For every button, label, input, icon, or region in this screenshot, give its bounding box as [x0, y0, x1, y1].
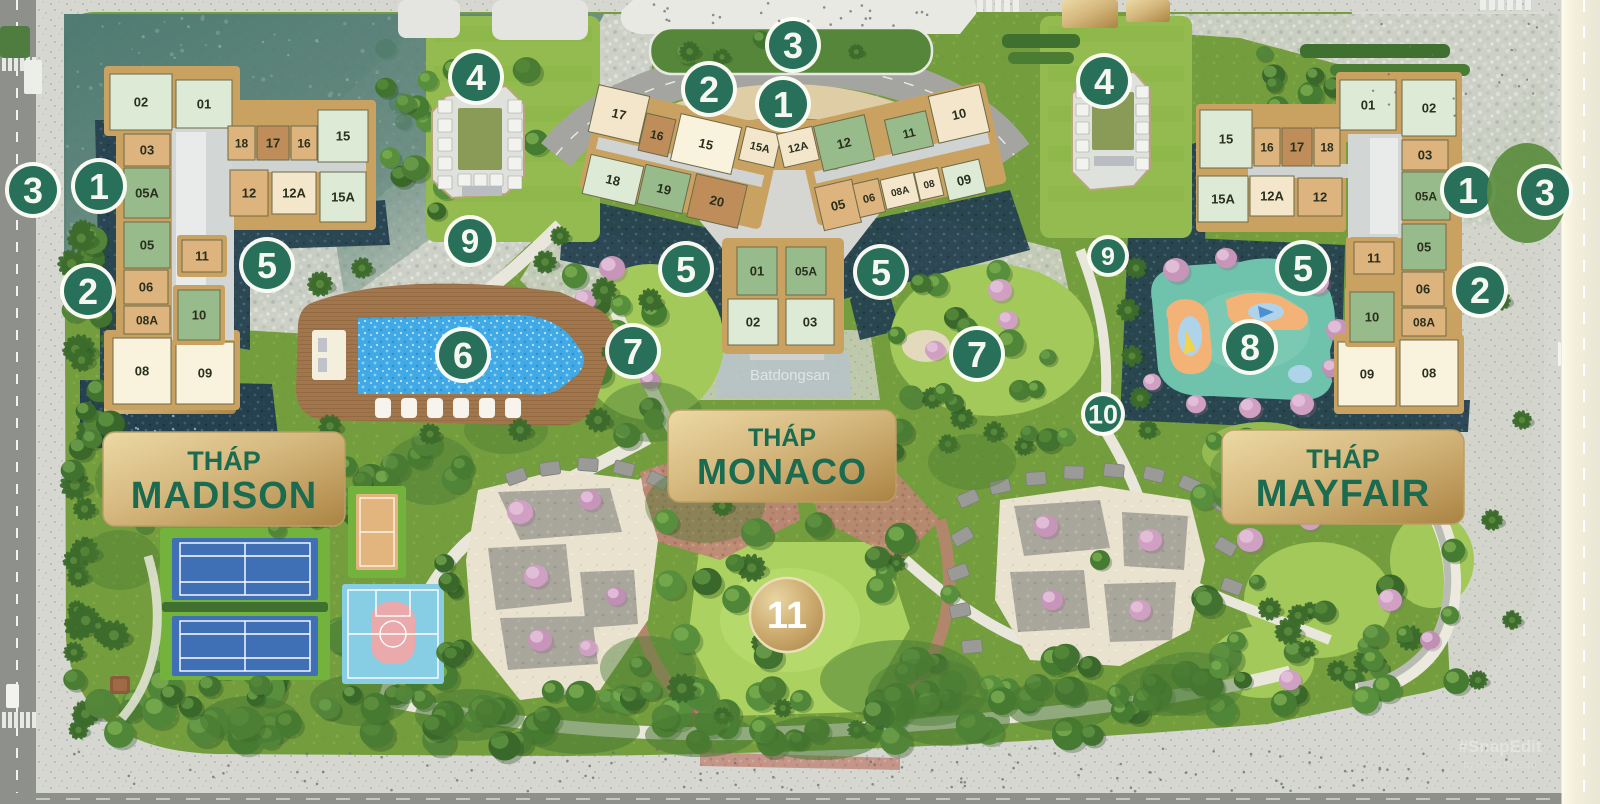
svg-text:11: 11 — [195, 249, 209, 264]
svg-text:15A: 15A — [331, 190, 355, 205]
svg-text:12: 12 — [242, 186, 256, 201]
svg-text:5: 5 — [1293, 248, 1313, 289]
svg-text:02: 02 — [1422, 101, 1436, 116]
svg-text:17: 17 — [1290, 140, 1304, 155]
svg-text:THÁP: THÁP — [187, 445, 261, 476]
svg-text:MONACO: MONACO — [697, 451, 867, 492]
svg-text:16: 16 — [1260, 140, 1274, 154]
svg-text:18: 18 — [1320, 140, 1334, 154]
svg-text:08: 08 — [135, 364, 149, 379]
svg-text:11: 11 — [1367, 251, 1381, 266]
svg-text:03: 03 — [803, 315, 817, 330]
svg-text:01: 01 — [1361, 98, 1375, 113]
svg-text:03: 03 — [1418, 148, 1432, 163]
svg-text:05A: 05A — [795, 264, 817, 278]
svg-text:11: 11 — [767, 595, 807, 637]
svg-text:#SnapEdit: #SnapEdit — [1458, 737, 1541, 756]
svg-text:1: 1 — [773, 84, 793, 125]
svg-text:06: 06 — [1416, 282, 1430, 297]
svg-text:01: 01 — [197, 97, 211, 112]
svg-text:7: 7 — [623, 331, 643, 372]
svg-text:THÁP: THÁP — [748, 423, 816, 452]
svg-text:02: 02 — [746, 315, 760, 330]
svg-text:6: 6 — [453, 335, 473, 376]
svg-text:05: 05 — [140, 238, 154, 253]
svg-text:08A: 08A — [1413, 315, 1435, 329]
svg-text:5: 5 — [257, 245, 277, 286]
svg-text:03: 03 — [140, 143, 154, 158]
svg-text:3: 3 — [23, 170, 43, 211]
svg-text:12: 12 — [1313, 190, 1327, 205]
svg-text:16: 16 — [297, 136, 311, 150]
svg-text:10: 10 — [192, 308, 206, 323]
svg-text:12A: 12A — [282, 186, 306, 201]
svg-text:05: 05 — [1417, 240, 1431, 255]
svg-text:15: 15 — [1219, 132, 1233, 147]
svg-text:01: 01 — [750, 264, 764, 279]
svg-text:7: 7 — [967, 334, 987, 375]
svg-text:09: 09 — [1360, 367, 1374, 382]
svg-text:1: 1 — [89, 166, 109, 207]
svg-text:05A: 05A — [1415, 189, 1437, 203]
svg-text:4: 4 — [466, 57, 486, 98]
svg-text:Batdongsan: Batdongsan — [750, 367, 830, 384]
svg-text:2: 2 — [78, 271, 98, 312]
svg-text:8: 8 — [1240, 327, 1260, 368]
svg-text:3: 3 — [1535, 172, 1555, 213]
svg-text:2: 2 — [699, 69, 719, 110]
svg-text:MADISON: MADISON — [131, 475, 317, 517]
svg-text:9: 9 — [461, 223, 479, 260]
svg-text:MAYFAIR: MAYFAIR — [1256, 473, 1431, 515]
svg-text:4: 4 — [1094, 61, 1114, 102]
svg-text:06: 06 — [139, 280, 153, 295]
svg-text:3: 3 — [783, 25, 803, 66]
svg-text:15: 15 — [336, 129, 350, 144]
svg-text:THÁP: THÁP — [1306, 443, 1380, 474]
svg-text:10: 10 — [1365, 310, 1379, 325]
svg-text:5: 5 — [676, 249, 696, 290]
svg-text:08: 08 — [1422, 366, 1436, 381]
svg-text:2: 2 — [1470, 270, 1490, 311]
svg-text:15A: 15A — [1211, 192, 1235, 207]
svg-text:17: 17 — [266, 136, 280, 151]
svg-text:5: 5 — [871, 252, 891, 293]
svg-text:08A: 08A — [136, 313, 158, 327]
svg-text:09: 09 — [198, 366, 212, 381]
svg-text:02: 02 — [134, 95, 148, 110]
svg-text:05A: 05A — [135, 186, 159, 201]
svg-text:12A: 12A — [1260, 189, 1284, 204]
svg-text:by PropertyGuru: by PropertyGuru — [1463, 760, 1536, 771]
svg-text:10: 10 — [1088, 400, 1118, 430]
svg-text:18: 18 — [235, 136, 249, 150]
svg-text:1: 1 — [1458, 170, 1478, 211]
svg-text:9: 9 — [1101, 243, 1115, 271]
